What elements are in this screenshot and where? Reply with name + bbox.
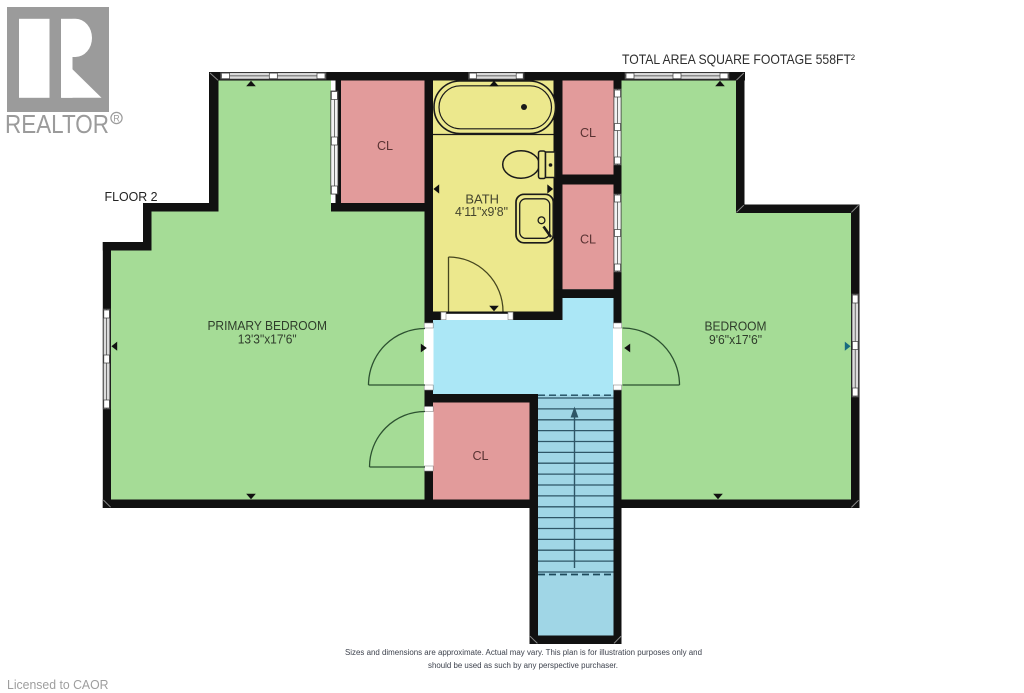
svg-text:BATH: BATH [465,192,499,206]
svg-text:FLOOR 2: FLOOR 2 [105,189,158,204]
svg-text:Licensed to CAOR: Licensed to CAOR [7,677,109,692]
svg-text:R: R [113,113,120,123]
svg-text:13'3"x17'6": 13'3"x17'6" [238,332,297,347]
svg-text:TOTAL AREA SQUARE FOOTAGE 558F: TOTAL AREA SQUARE FOOTAGE 558FT² [622,51,855,67]
svg-text:should be used as such by any: should be used as such by any perspectiv… [428,661,618,670]
svg-text:CL: CL [472,449,488,463]
svg-text:PRIMARY BEDROOM: PRIMARY BEDROOM [207,318,327,333]
svg-text:CL: CL [377,139,393,153]
svg-text:9'6"x17'6": 9'6"x17'6" [709,332,762,347]
svg-text:CL: CL [580,126,596,140]
svg-text:REALTOR: REALTOR [5,109,109,139]
svg-text:4'11"x9'8": 4'11"x9'8" [455,205,508,219]
svg-text:CL: CL [580,233,596,247]
svg-text:Sizes and dimensions are appro: Sizes and dimensions are approximate. Ac… [345,648,702,657]
